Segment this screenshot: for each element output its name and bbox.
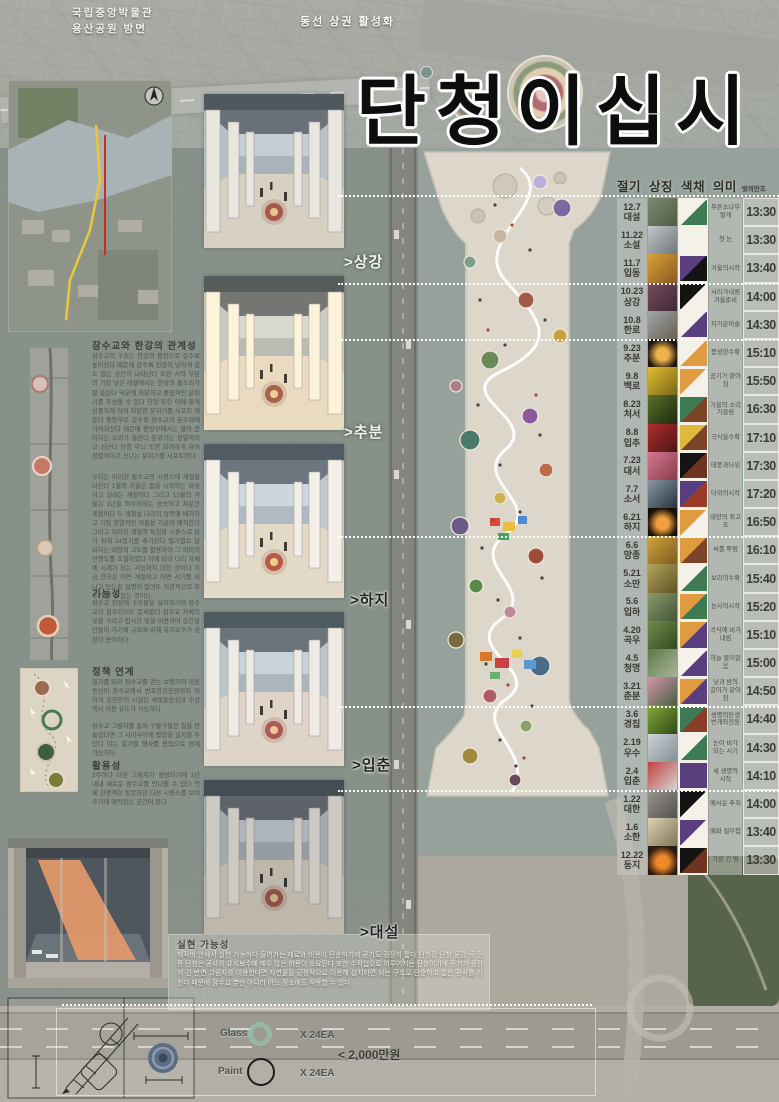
table-subtitle: 빛의만조 [742,183,766,193]
section-heading: 잠수교와 한강의 관계성 [92,338,197,352]
season-date: 7.23 [623,455,641,465]
season-meaning: 생명의탄생 번개와천둥 [709,705,742,733]
pier-elevation-drawing [8,838,168,988]
season-row: 3.21 춘분 낮과 밤의 길이가 같아짐 14:50 [617,677,779,705]
season-date-cell: 5.6 입하 [617,593,647,621]
season-time: 17:30 [743,452,779,480]
season-row: 12.22 동지 가장 긴 밤 13:30 [617,846,779,874]
season-color-swatch [678,677,708,705]
season-color-swatch [678,367,708,395]
season-date: 7.7 [626,484,639,494]
frost-leaves-photo [648,283,677,311]
poster-title: 단청이십시 [356,50,756,160]
wheat-photo [648,536,677,564]
season-meaning: 첫 눈 [709,226,742,254]
season-row: 6.6 망종 씨를 뿌림 16:10 [617,536,779,564]
season-date: 8.23 [623,399,641,409]
season-term: 입춘 [624,776,641,786]
season-term: 곡우 [624,635,641,645]
riverside-park [688,856,779,1006]
season-date: 5.6 [626,596,639,606]
season-time: 16:30 [743,395,779,423]
season-time: 14:30 [743,311,779,339]
season-row: 11.7 입동 겨울의시작 13:40 [617,254,779,282]
season-color-swatch [678,508,708,536]
season-time: 15:10 [743,339,779,367]
season-meaning: 농사의시작 [709,593,742,621]
season-date: 12.22 [621,850,644,860]
season-row: 8.23 처서 가을의 소리가들림 16:30 [617,395,779,423]
section-paragraph: 우리는 이러한 잠수교의 시퀀스에 계절을 더한다 1월의 겨울은 봄을 시작하… [92,473,200,601]
season-term: 청명 [624,663,641,673]
season-term: 춘분 [624,691,641,701]
plum-blossom-photo [648,818,677,846]
season-time: 17:10 [743,424,779,452]
season-time: 14:50 [743,677,779,705]
fallen-leaves-photo [648,254,677,282]
season-color-swatch [678,621,708,649]
season-color-swatch [678,283,708,311]
season-date: 4.20 [623,625,641,635]
seasons-table-header: 절기 상징 색채 의미 빛의만조 [617,176,779,195]
lotus-photo [648,677,677,705]
paint-circle-icon [247,1058,275,1086]
render-view-daeseol [204,780,344,934]
season-row: 6.21 하지 태양의 최고조 16:50 [617,508,779,536]
season-meaning: 더위의시작 [709,480,742,508]
season-term: 소서 [624,494,641,504]
season-time: 16:10 [743,536,779,564]
red-flower-photo [648,762,677,790]
season-date-cell: 9.23 추분 [617,339,647,367]
season-term: 하지 [624,522,641,532]
dotted-divider [338,339,779,341]
glass-circle-icon [248,1022,272,1046]
season-meaning: 매서운 추위 [709,790,742,818]
season-meaning: 눈이 비가 되는 시기 [709,734,742,762]
season-time: 14:40 [743,705,779,733]
season-date: 2.4 [626,766,639,776]
winter-city-photo [648,790,677,818]
season-meaning: 보리의수확 [709,564,742,592]
season-term: 한로 [624,325,641,335]
season-color-swatch [678,762,708,790]
season-color-swatch [678,734,708,762]
season-row: 9.23 추분 풍성한수확 15:10 [617,339,779,367]
render-label: >대설 [360,921,399,942]
season-date-cell: 7.23 대서 [617,452,647,480]
season-color-swatch [678,564,708,592]
dotted-divider [338,790,779,792]
season-color-swatch [678,226,708,254]
section-paragraph: 잠수교 그림자를 통해 구불구불한 길을 만들었다면 그 사이사이에 팝업을 설… [92,722,200,759]
dragon-painting-photo [648,452,677,480]
season-row: 5.6 입하 농사의시작 15:20 [617,593,779,621]
glass-quantity: X 24EA [300,1030,334,1041]
season-meaning: 태풍과더위 [709,452,742,480]
season-row: 2.19 우수 눈이 비가 되는 시기 14:30 [617,734,779,762]
season-row: 5.21 소만 보리의수확 15:40 [617,564,779,592]
render-label: >상강 [344,251,383,272]
section-heading: 기능성 [92,586,121,600]
season-date-cell: 2.19 우수 [617,734,647,762]
bridge-plan-diagram [30,348,68,660]
cost-label: < 2,000만원 [338,1046,400,1063]
section-paragraph: 잠수교의 구조는 한강의 중앙으로 갈수록 높아진다 때문에 갈수록 천장이 낮… [92,352,200,462]
season-row: 4.20 곡우 곡식에 비가내림 15:10 [617,621,779,649]
dotted-divider [62,1004,592,1006]
season-term: 처서 [624,409,641,419]
compass-icon [145,87,163,105]
season-time: 13:30 [743,846,779,874]
season-color-swatch [678,480,708,508]
season-time: 14:30 [743,734,779,762]
season-row: 3.6 경칩 생명의탄생 번개와천둥 14:40 [617,705,779,733]
season-row: 10.8 한로 차가운이슬 14:30 [617,311,779,339]
season-date: 11.7 [623,258,640,268]
season-meaning: 씨를 뿌림 [709,536,742,564]
season-date: 6.6 [626,540,639,550]
render-label: >하지 [350,589,389,610]
policy-route-diagram [20,668,78,792]
season-color-swatch [678,339,708,367]
season-time: 15:10 [743,621,779,649]
season-date-cell: 3.6 경칩 [617,705,647,733]
season-time: 13:30 [743,198,779,226]
season-date: 10.8 [623,315,641,325]
season-term: 대서 [624,466,641,476]
pine-tree-photo [648,198,677,226]
season-date: 1.6 [626,822,639,832]
season-meaning: 가장 긴 밤 [709,846,742,874]
dotted-divider [338,706,779,708]
season-term: 입하 [624,607,641,617]
caption-line: 국립중앙박물관 [72,6,154,22]
design-poster: 국립중앙박물관 용산공원 방면 동선 상권 활성화 단청이십시 [0,0,779,1102]
season-color-swatch [678,818,708,846]
season-date: 10.23 [621,286,644,296]
season-meaning: 낮과 밤의 길이가 같아짐 [709,677,742,705]
season-date: 2.19 [623,737,641,747]
section-paragraph: 잠수교 천장에 구조물을 설치하기에 잠수교가 침수되어도 문제없다 잠수교 자… [92,599,200,645]
full-moon-photo [648,339,677,367]
paint-quantity: X 24EA [300,1068,334,1079]
season-term: 소한 [624,832,641,842]
season-date-cell: 3.21 춘분 [617,677,647,705]
season-color-swatch [678,846,708,874]
season-time: 16:50 [743,508,779,536]
top-left-caption: 국립중앙박물관 용산공원 방면 [72,6,154,38]
season-term: 우수 [624,748,641,758]
season-date-cell: 6.21 하지 [617,508,647,536]
top-right-caption: 동선 상권 활성화 [300,13,395,29]
section-heading: 정책 연계 [92,664,135,678]
section-paragraph: 제작비 안에서 실현 가능하다 들어가는 재료와 비용이 단순하기에 공기도 굉… [177,951,483,988]
season-row: 8.8 입추 곡식을수확 17:10 [617,424,779,452]
season-row: 10.23 상강 서리가내림 겨울준비 14:00 [617,283,779,311]
season-time: 14:10 [743,762,779,790]
render-view-sanggang [204,94,344,248]
season-term: 상강 [624,297,641,307]
season-meaning: 가을의 소리가들림 [709,395,742,423]
season-date-cell: 1.6 소한 [617,818,647,846]
tree-photo [648,649,677,677]
season-date: 5.21 [623,568,641,578]
season-date: 11.22 [621,230,643,240]
season-date: 4.5 [626,653,639,663]
render-label: >추분 [344,421,383,442]
season-date-cell: 2.4 입춘 [617,762,647,790]
season-meaning: 하늘 물이맑음 [709,649,742,677]
season-row: 1.6 소한 매화 필무렵 13:40 [617,818,779,846]
season-date-cell: 6.6 망종 [617,536,647,564]
season-date: 6.21 [623,512,641,522]
season-time: 15:50 [743,367,779,395]
render-view-chubun [204,276,344,430]
season-term: 대한 [624,804,641,814]
season-date: 12.7 [623,202,641,212]
dotted-divider [338,283,779,285]
season-row: 7.23 대서 태풍과더위 17:30 [617,452,779,480]
leaf-frog-photo [648,705,677,733]
section-paragraph: 2주마다 다른 그림자가 생성되기에 1년 내내 새로운 잠수교를 만나볼 수 … [92,771,200,808]
season-meaning: 차가운이슬 [709,311,742,339]
season-color-swatch [678,536,708,564]
season-date-cell: 10.8 한로 [617,311,647,339]
season-date-cell: 8.23 처서 [617,395,647,423]
season-meaning: 푸른소나무 절개 [709,198,742,226]
season-row: 4.5 청명 하늘 물이맑음 15:00 [617,649,779,677]
duck-water-photo [648,311,677,339]
season-row: 12.7 대설 푸른소나무 절개 13:30 [617,198,779,226]
season-row: 2.4 입춘 새 생명의 시작 14:10 [617,762,779,790]
season-color-swatch [678,395,708,423]
season-date: 3.6 [626,709,639,719]
season-date: 9.8 [626,371,639,381]
season-time: 14:00 [743,790,779,818]
season-term: 대설 [624,212,641,222]
season-time: 15:00 [743,649,779,677]
season-date-cell: 4.5 청명 [617,649,647,677]
section-paragraph: 절기를 따라 잠수교를 걷는 보행자의 이동 동선이 잠수교에서 반포한강공원까… [92,678,200,715]
barley-photo [648,564,677,592]
render-label: >입춘 [352,754,391,775]
snow-mountain-photo [648,734,677,762]
season-date-cell: 4.20 곡우 [617,621,647,649]
season-color-swatch [678,311,708,339]
season-color-swatch [678,649,708,677]
section-heading: 실현 가능성 [177,937,229,951]
season-color-swatch [678,254,708,282]
season-term: 소만 [624,579,641,589]
season-color-swatch [678,790,708,818]
season-date-cell: 5.21 소만 [617,564,647,592]
season-meaning: 곡식에 비가내림 [709,621,742,649]
season-meaning: 공기가 맑아짐 [709,367,742,395]
season-term: 입동 [624,268,641,278]
season-meaning: 태양의 최고조 [709,508,742,536]
season-date-cell: 12.22 동지 [617,846,647,874]
legend-frame [56,1008,596,1096]
season-meaning: 매화 필무렵 [709,818,742,846]
season-term: 소설 [624,240,641,250]
season-color-swatch [678,198,708,226]
season-term: 입추 [624,438,641,448]
site-map-panel [8,80,172,332]
season-term: 동지 [624,860,641,870]
sunset-photo [648,846,677,874]
season-date-cell: 1.22 대한 [617,790,647,818]
season-meaning: 서리가내림 겨울준비 [709,283,742,311]
waves-photo [648,480,677,508]
season-date-cell: 7.7 소서 [617,480,647,508]
season-row: 9.8 백로 공기가 맑아짐 15:50 [617,367,779,395]
season-date-cell: 9.8 백로 [617,367,647,395]
season-color-swatch [678,705,708,733]
dotted-divider [338,536,779,538]
season-row: 11.22 소설 첫 눈 13:30 [617,226,779,254]
render-view-ipchun [204,612,344,766]
paint-label: Paint [218,1066,242,1077]
season-date: 1.22 [623,794,641,804]
season-color-swatch [678,424,708,452]
fireworks-photo [648,508,677,536]
table-title: 절기 상징 색채 의미 [617,176,737,195]
season-row: 1.22 대한 매서운 추위 14:00 [617,790,779,818]
season-meaning: 새 생명의 시작 [709,762,742,790]
season-date: 3.21 [623,681,641,691]
season-date-cell: 11.7 입동 [617,254,647,282]
season-meaning: 풍성한수확 [709,339,742,367]
season-term: 경칩 [624,719,641,729]
glass-label: Glass [220,1028,247,1039]
season-date-cell: 12.7 대설 [617,198,647,226]
season-time: 14:00 [743,283,779,311]
season-date: 8.8 [626,427,639,437]
rice-planting-photo [648,593,677,621]
season-time: 15:40 [743,564,779,592]
season-time: 15:20 [743,593,779,621]
season-date: 9.23 [623,343,641,353]
season-term: 망종 [624,550,641,560]
dotted-divider [338,195,779,197]
green-rice-photo [648,621,677,649]
render-view-haji [204,444,344,598]
season-time: 13:40 [743,818,779,846]
red-berries-photo [648,424,677,452]
season-color-swatch [678,593,708,621]
yellow-flowers-photo [648,367,677,395]
season-color-swatch [678,452,708,480]
caption-line: 용산공원 방면 [72,22,154,38]
first-snow-photo [648,226,677,254]
season-time: 17:20 [743,480,779,508]
season-time: 13:30 [743,226,779,254]
season-meaning: 겨울의시작 [709,254,742,282]
insect-photo [648,395,677,423]
season-date-cell: 10.23 상강 [617,283,647,311]
season-term: 백로 [624,381,641,391]
season-term: 추분 [624,353,641,363]
season-time: 13:40 [743,254,779,282]
feasibility-block: 실현 가능성 제작비 안에서 실현 가능하다 들어가는 재료와 비용이 단순하기… [168,934,490,1010]
season-date-cell: 8.8 입추 [617,424,647,452]
season-meaning: 곡식을수확 [709,424,742,452]
season-date-cell: 11.22 소설 [617,226,647,254]
section-heading: 활용성 [92,758,121,772]
season-row: 7.7 소서 더위의시작 17:20 [617,480,779,508]
